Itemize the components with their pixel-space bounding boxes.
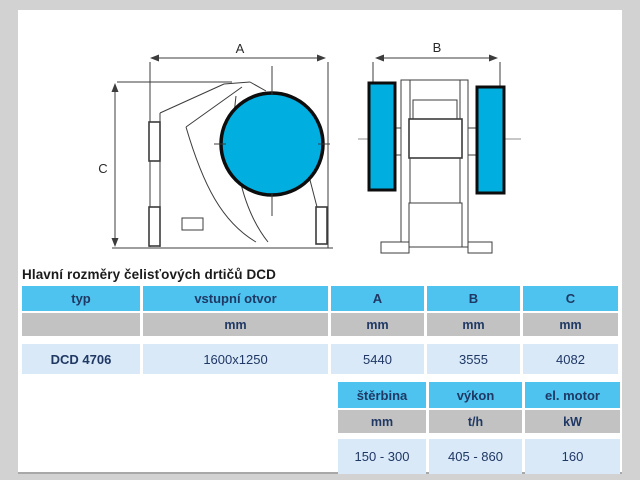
col-header-vstupni-otvor: vstupní otvor — [143, 286, 328, 311]
col-header-vykon: výkon — [429, 382, 522, 408]
page-title: Hlavní rozměry čelisťových drtičů DCD — [22, 267, 276, 282]
body-right-slant — [310, 180, 317, 207]
performance-table-header-row: štěrbina výkon el. motor — [338, 382, 620, 408]
foot-right — [316, 207, 327, 244]
technical-drawing: A B C — [0, 0, 640, 285]
unit-el-motor: kW — [525, 410, 620, 433]
side-view — [112, 55, 334, 249]
value-el-motor: 160 — [525, 439, 620, 474]
performance-table-units-row: mm t/h kW — [338, 410, 620, 433]
dimensions-table-units-row: mm mm mm mm — [22, 313, 618, 336]
performance-table: štěrbina výkon el. motor mm t/h kW 150 -… — [338, 382, 620, 474]
bearing-tab-right — [468, 128, 476, 155]
base-foot-left — [381, 242, 409, 253]
col-header-typ: typ — [22, 286, 140, 311]
body-top-slant — [160, 84, 224, 113]
front-view — [358, 55, 521, 254]
value-c: 4082 — [523, 344, 618, 374]
col-header-sterbina: štěrbina — [338, 382, 426, 408]
foot-left-upper — [149, 122, 160, 161]
body-slant-to-wheel — [250, 82, 266, 91]
dimensions-table: typ vstupní otvor A B C mm mm mm mm DCD … — [22, 286, 618, 374]
value-vykon: 405 - 860 — [429, 439, 522, 474]
unit-vykon: t/h — [429, 410, 522, 433]
foot-left-lower — [149, 207, 160, 246]
dimensions-table-data-row: DCD 4706 1600x1250 5440 3555 4082 — [22, 344, 618, 374]
inspection-door — [182, 218, 203, 230]
value-sterbina: 150 - 300 — [338, 439, 426, 474]
performance-table-data-row: 150 - 300 405 - 860 160 — [338, 439, 620, 474]
dim-c-arrow-top — [112, 83, 119, 92]
dim-b-label: B — [433, 40, 442, 55]
dim-a-label: A — [236, 41, 245, 56]
col-header-el-motor: el. motor — [525, 382, 620, 408]
dim-b-arrow-left — [375, 55, 384, 62]
dim-c-label: C — [98, 161, 107, 176]
flywheel-circle — [221, 93, 323, 195]
dim-b-arrow-right — [489, 55, 498, 62]
col-header-b: B — [427, 286, 520, 311]
dimensions-table-header-row: typ vstupní otvor A B C — [22, 286, 618, 311]
unit-c: mm — [523, 313, 618, 336]
unit-vstupni-otvor: mm — [143, 313, 328, 336]
upper-block — [413, 100, 457, 120]
lower-block — [409, 203, 462, 247]
base-foot-right — [468, 242, 492, 253]
unit-typ — [22, 313, 140, 336]
pitman-block — [409, 119, 462, 158]
dim-a-arrow-left — [150, 55, 159, 62]
unit-b: mm — [427, 313, 520, 336]
value-a: 5440 — [331, 344, 424, 374]
dim-a-arrow-right — [317, 55, 326, 62]
unit-a: mm — [331, 313, 424, 336]
col-header-c: C — [523, 286, 618, 311]
value-typ: DCD 4706 — [22, 344, 140, 374]
flywheel-front-left — [369, 83, 395, 190]
flywheel-front-right — [477, 87, 504, 193]
unit-sterbina: mm — [338, 410, 426, 433]
document-page: A B C Hlavní rozměry čelisťových drtičů … — [0, 0, 640, 480]
value-b: 3555 — [427, 344, 520, 374]
value-vstupni-otvor: 1600x1250 — [143, 344, 328, 374]
dim-c-arrow-bottom — [112, 238, 119, 247]
col-header-a: A — [331, 286, 424, 311]
